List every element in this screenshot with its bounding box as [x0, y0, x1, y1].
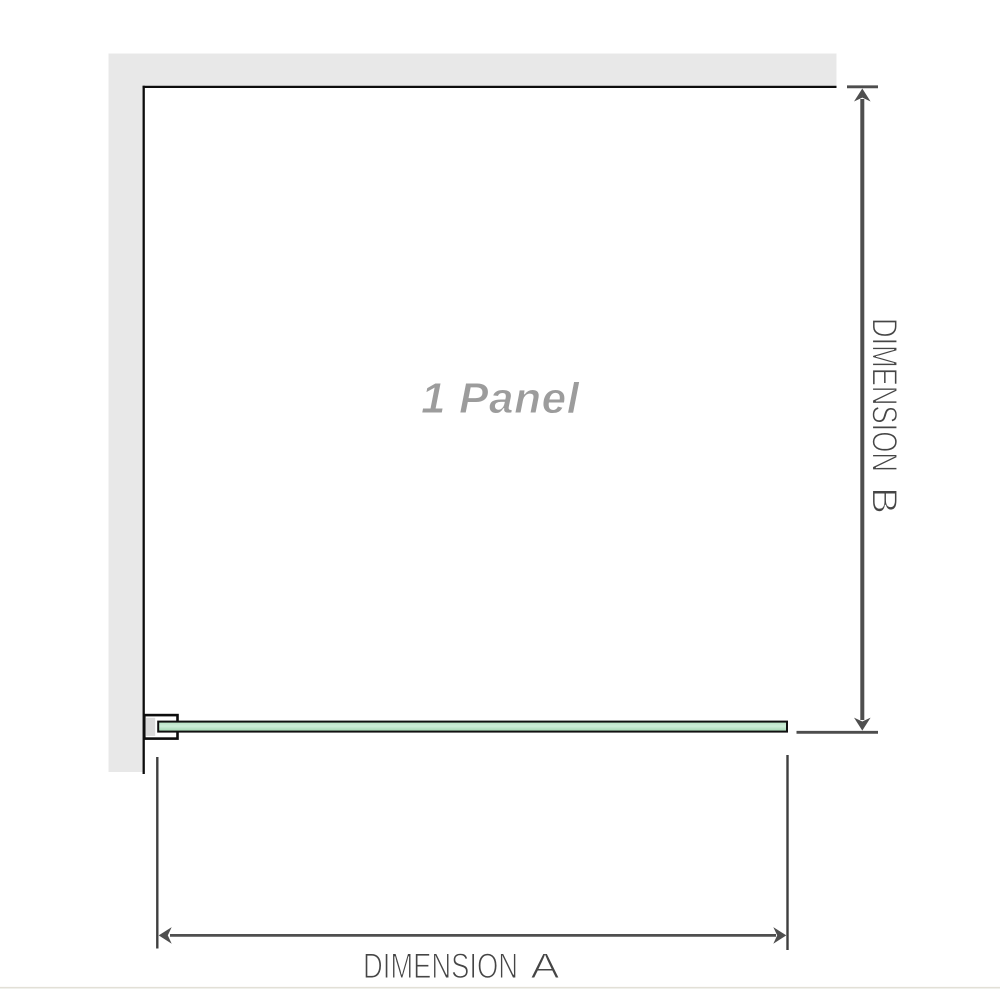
- svg-text:A: A: [531, 947, 561, 986]
- svg-text:1 Panel: 1 Panel: [421, 374, 580, 423]
- svg-text:DIMENSION: DIMENSION: [363, 947, 518, 986]
- svg-text:DIMENSION: DIMENSION: [865, 318, 904, 472]
- svg-text:B: B: [865, 487, 904, 514]
